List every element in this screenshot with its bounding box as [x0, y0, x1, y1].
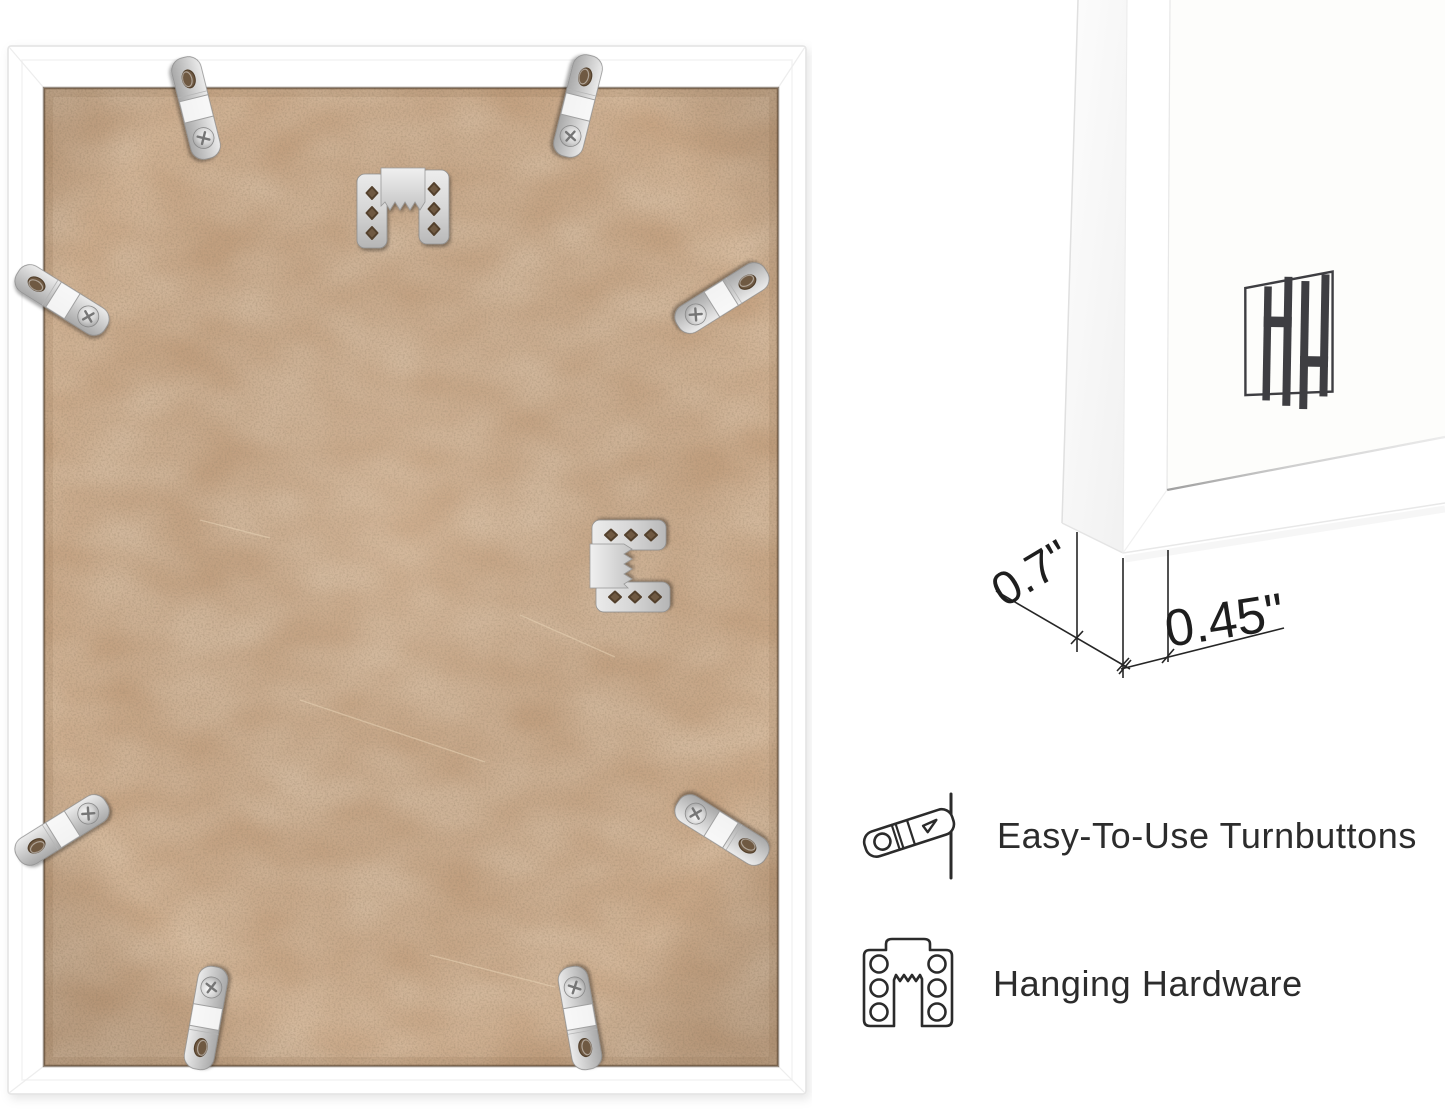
feature-row-turnbuttons: Easy-To-Use Turnbuttons: [855, 790, 1417, 882]
feature-label-hanging-hardware: Hanging Hardware: [993, 963, 1303, 1005]
depth-measurement-label: 0.7": [982, 529, 1080, 617]
turnbutton-icon: [855, 790, 967, 882]
frame-back-photo: [0, 0, 812, 1114]
feature-row-hanging-hardware: Hanging Hardware: [856, 934, 1303, 1034]
frame-front-molding-left: [1123, 0, 1170, 553]
mdf-backing-board: [44, 88, 778, 1066]
frame-side-face: [1062, 0, 1127, 553]
sawtooth-hanger-icon: [856, 934, 960, 1034]
frame-mat: [1167, 0, 1445, 490]
frame-corner-photo: 0.7" 0.45": [960, 0, 1445, 700]
face-measurement-label: 0.45": [1161, 583, 1288, 659]
feature-label-turnbuttons: Easy-To-Use Turnbuttons: [997, 815, 1417, 857]
frame-corner-render: [1062, 0, 1445, 559]
